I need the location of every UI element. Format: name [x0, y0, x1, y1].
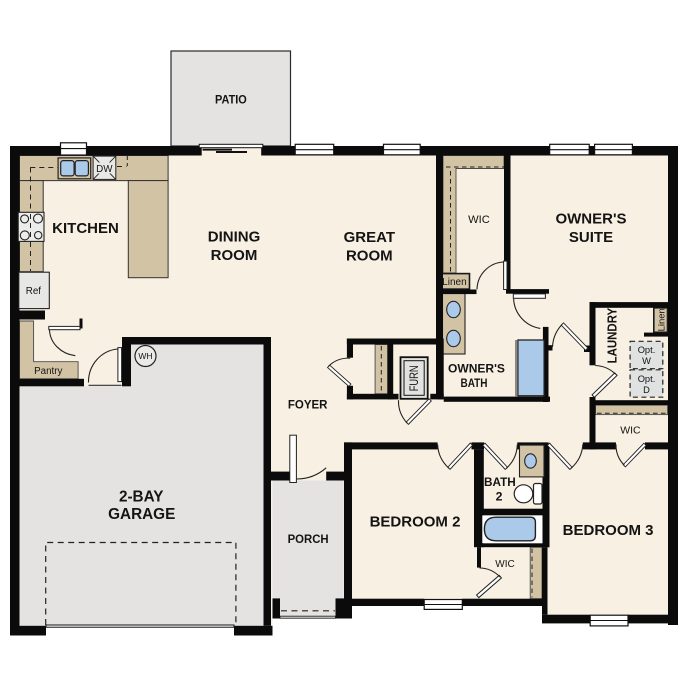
svg-text:KITCHEN: KITCHEN: [52, 220, 119, 237]
svg-text:GREAT: GREAT: [344, 229, 395, 246]
svg-text:D: D: [643, 385, 650, 395]
svg-text:Pantry: Pantry: [34, 366, 62, 377]
svg-text:BEDROOM 3: BEDROOM 3: [563, 522, 654, 539]
svg-text:BEDROOM 2: BEDROOM 2: [370, 514, 461, 531]
svg-text:2: 2: [496, 490, 503, 504]
svg-text:GARAGE: GARAGE: [108, 506, 175, 523]
svg-text:ROOM: ROOM: [211, 247, 258, 264]
svg-text:FURN: FURN: [409, 365, 421, 391]
svg-text:W: W: [642, 356, 651, 366]
svg-text:BATH: BATH: [484, 475, 516, 489]
svg-text:Opt.: Opt.: [638, 374, 656, 384]
svg-text:DW: DW: [96, 164, 113, 175]
svg-text:BATH: BATH: [461, 376, 488, 390]
svg-text:WIC: WIC: [620, 424, 641, 436]
svg-text:OWNER'S: OWNER'S: [555, 211, 626, 228]
svg-text:WIC: WIC: [495, 559, 514, 570]
svg-text:PORCH: PORCH: [288, 532, 329, 546]
svg-text:FOYER: FOYER: [288, 397, 328, 411]
svg-text:Ref: Ref: [26, 286, 42, 297]
svg-text:DINING: DINING: [208, 229, 261, 246]
svg-text:WH: WH: [138, 351, 152, 361]
svg-text:Opt.: Opt.: [638, 345, 656, 355]
svg-text:WIC: WIC: [468, 214, 490, 226]
svg-text:PATIO: PATIO: [215, 94, 247, 106]
svg-text:ROOM: ROOM: [346, 248, 393, 265]
svg-text:LAUNDRY: LAUNDRY: [605, 308, 620, 364]
svg-text:SUITE: SUITE: [569, 229, 613, 246]
svg-text:2-BAY: 2-BAY: [119, 488, 164, 505]
svg-text:Linen: Linen: [442, 277, 466, 288]
svg-text:OWNER'S: OWNER'S: [448, 362, 505, 376]
svg-text:Linen: Linen: [656, 308, 667, 331]
